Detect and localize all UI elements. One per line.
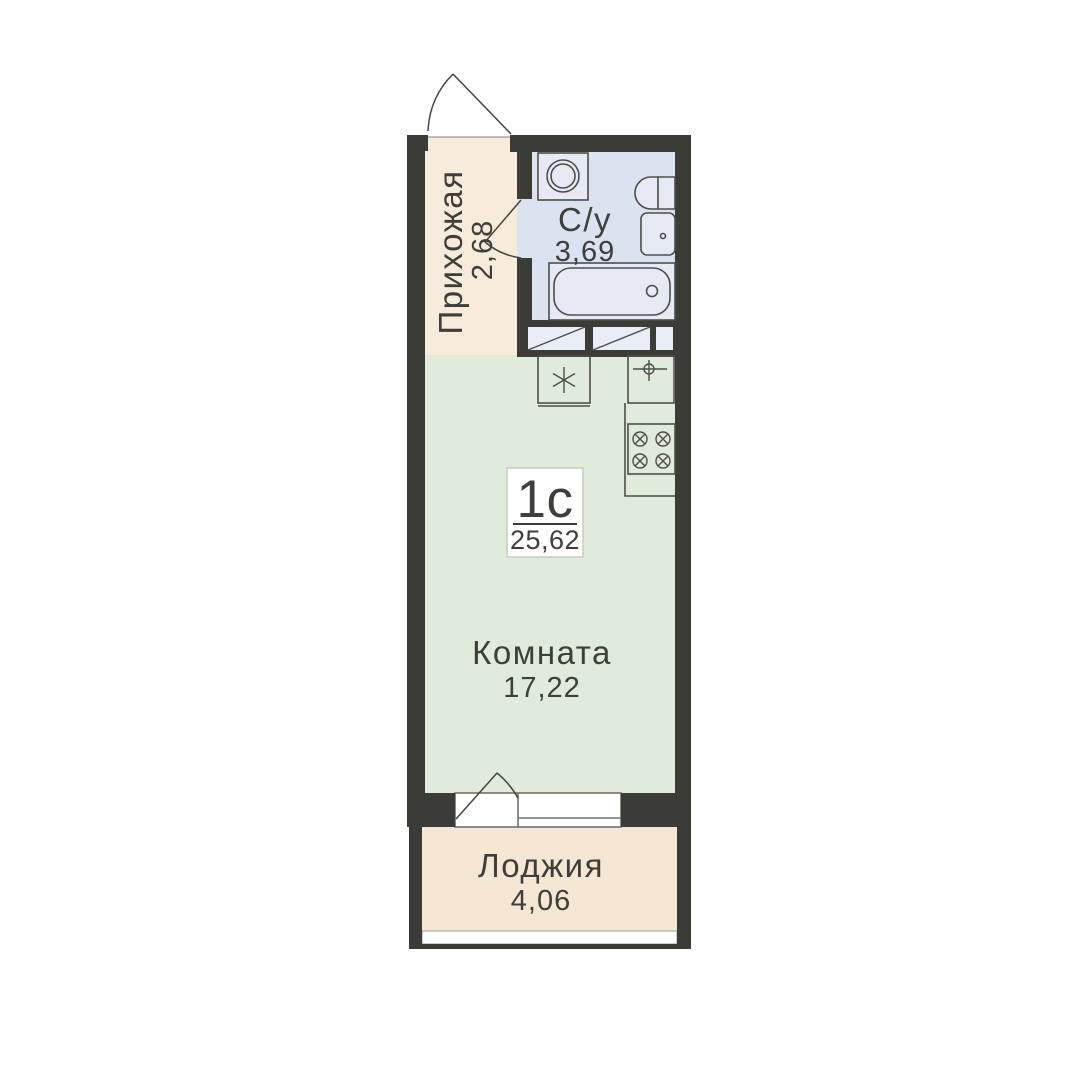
washing-machine-drum-inner: [551, 164, 575, 188]
wall-loggia-right: [677, 820, 691, 949]
floor-plan: Прихожая 2,68 С/у 3,69 Комната 17,22 Лод…: [0, 0, 1080, 1080]
washing-machine-icon: [538, 153, 588, 200]
bath-sink-drain: [661, 234, 666, 239]
hallway-area: 2,68: [467, 220, 499, 280]
wall-left: [407, 135, 425, 827]
bath-sink-basin: [641, 213, 675, 255]
bathtub-icon: [549, 263, 675, 320]
wall-top: [510, 135, 691, 152]
bath-sink-icon: [641, 213, 675, 255]
balcony-window-unit: [455, 793, 621, 827]
loggia-glazing: [422, 931, 677, 944]
wall-loggia-left: [409, 820, 422, 949]
bathroom-label: С/у: [558, 201, 612, 238]
toilet-icon: [635, 177, 675, 209]
wall-right: [675, 135, 691, 827]
wall-loggia-sill: [409, 944, 691, 949]
living-label: Комната: [472, 634, 612, 671]
loggia-label: Лоджия: [478, 847, 604, 884]
loggia-area: 4,06: [511, 885, 571, 917]
living-area: 17,22: [503, 672, 581, 704]
wall-bathroom-left-upper: [517, 135, 532, 199]
hallway-label: Прихожая: [432, 170, 469, 335]
unit-type-label: 1с: [517, 470, 574, 529]
bathtub-outer: [549, 263, 675, 320]
wardrobe-cell: [656, 327, 673, 350]
entrance-door-swing-icon: [428, 74, 511, 134]
toilet-bowl: [635, 177, 675, 209]
bathroom-area: 3,69: [555, 236, 615, 268]
living-floor: [425, 355, 675, 793]
loggia-glazing-band: [422, 931, 677, 944]
unit-total-area: 25,62: [510, 525, 580, 555]
balcony-unit-frame: [455, 793, 621, 827]
